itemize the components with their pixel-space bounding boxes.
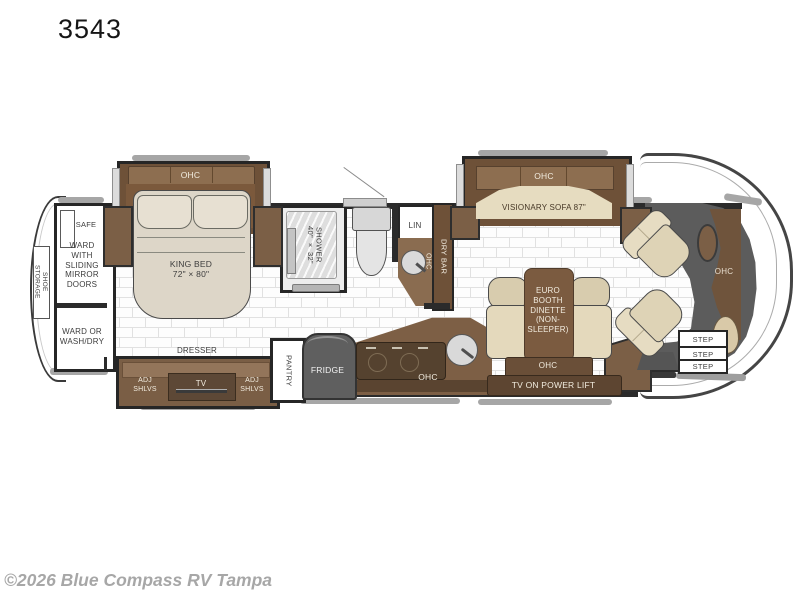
bath-wall-stub: [392, 205, 398, 262]
adj-shelves-right-label: ADJ SHLVS: [228, 377, 276, 394]
dresser-label: DRESSER: [157, 346, 237, 356]
kitchen-bottom-skirt-right: [478, 399, 612, 405]
shower-label: SHOWER 40" × 32": [296, 210, 332, 280]
cooktop-knob: [418, 347, 428, 349]
cooktop-burner: [400, 353, 419, 372]
king-bed-label: KING BED 72" × 80": [133, 259, 249, 280]
bath-door-bar: [343, 198, 387, 207]
adj-shelves-left-label: ADJ SHLVS: [121, 377, 169, 394]
bed-slide-window-right: [263, 168, 271, 208]
entry-step-3: STEP: [678, 359, 728, 374]
watermark: ©2026 Blue Compass RV Tampa: [4, 570, 272, 591]
shower-door-track: [292, 284, 340, 292]
pillow-left: [137, 195, 192, 229]
door-jamb-mark: [104, 357, 107, 371]
blanket-fold: [137, 237, 245, 253]
fridge-top-arc: [307, 336, 348, 352]
floorplan-page: 3543 ©2026 Blue Compass RV Tampa SAFE WA…: [0, 0, 800, 600]
dinette-label: EURO BOOTH DINETTE (NON- SLEEPER): [524, 286, 572, 335]
bath-door-swing-line: [343, 167, 384, 197]
nightstand-right: [253, 206, 283, 267]
nightstand-left: [103, 206, 133, 267]
sofa-slide-window-left: [456, 164, 464, 208]
tv-lift-label: TV ON POWER LIFT: [487, 380, 620, 390]
dinette-ohc-label: OHC: [505, 361, 591, 371]
sofa-ohc-label: OHC: [476, 171, 612, 181]
safe-label: SAFE: [71, 220, 101, 229]
kitchen-ohc-label: OHC: [398, 372, 458, 382]
cab-ohc-label: OHC: [704, 267, 744, 277]
dry-bar-label: DRY BAR: [432, 203, 454, 311]
pillow-right: [193, 195, 248, 229]
tv-label: TV: [168, 379, 234, 389]
cooktop-knob: [366, 347, 376, 349]
cooktop-burner: [368, 353, 387, 372]
fridge-label: FRIDGE: [302, 365, 353, 375]
bed-slide-window-left: [112, 168, 120, 208]
sofa-slide-window-right: [626, 164, 634, 208]
steering-wheel: [697, 224, 718, 262]
ward-washdry-label: WARD OR WASH/DRY: [55, 327, 109, 347]
bed-ohc-label: OHC: [128, 170, 253, 180]
tv-screen-bar: [176, 389, 227, 393]
visionary-sofa-label: VISIONARY SOFA 87": [476, 203, 612, 213]
cooktop-knob: [392, 347, 402, 349]
page-title: 3543: [58, 14, 122, 45]
shoe-storage-label: SHOE STORAGE: [33, 246, 48, 317]
ward-sliding-label: WARD WITH SLIDING MIRROR DOORS: [57, 241, 107, 290]
dinette-bench-right-seat: [568, 305, 612, 359]
rear-room-divider: [57, 303, 107, 308]
toilet-tank: [352, 207, 391, 231]
shower-fixture: [287, 228, 296, 274]
linen-label: LIN: [398, 221, 432, 231]
